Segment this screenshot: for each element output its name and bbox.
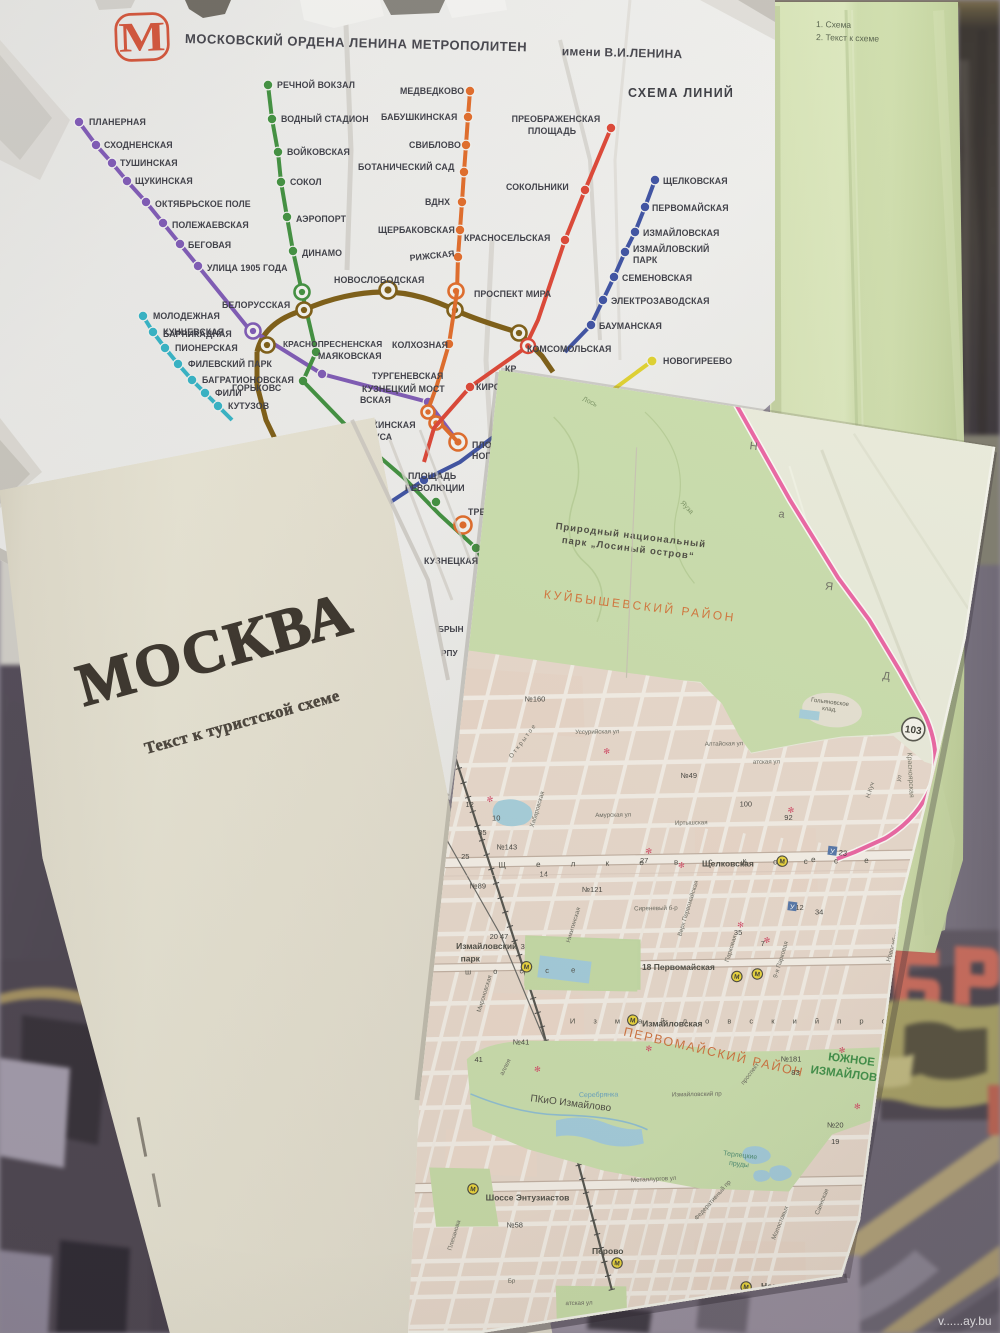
svg-text:ЩЕРБАКОВСКАЯ: ЩЕРБАКОВСКАЯ bbox=[378, 225, 455, 235]
svg-text:УЛИЦА 1905 ГОДА: УЛИЦА 1905 ГОДА bbox=[207, 263, 288, 273]
svg-text:100: 100 bbox=[740, 800, 753, 809]
svg-text:М: М bbox=[734, 973, 740, 981]
svg-text:12: 12 bbox=[465, 800, 473, 809]
svg-text:№58: №58 bbox=[507, 1220, 523, 1229]
svg-text:МОЛОДЕЖНАЯ: МОЛОДЕЖНАЯ bbox=[153, 311, 220, 321]
svg-text:34: 34 bbox=[815, 908, 823, 917]
svg-text:М: М bbox=[470, 1186, 476, 1194]
svg-text:№89: №89 bbox=[470, 881, 486, 890]
svg-text:ВОЙКОВСКАЯ: ВОЙКОВСКАЯ bbox=[287, 146, 350, 157]
svg-text:НОВОСЛОБОДСКАЯ: НОВОСЛОБОДСКАЯ bbox=[334, 275, 424, 285]
svg-text:№160: №160 bbox=[525, 695, 546, 704]
svg-text:ТУШИНСКАЯ: ТУШИНСКАЯ bbox=[120, 158, 178, 168]
svg-text:Измайловский: Измайловский bbox=[456, 941, 517, 951]
svg-text:1. Схема: 1. Схема bbox=[816, 19, 852, 30]
svg-text:ЩУКИНСКАЯ: ЩУКИНСКАЯ bbox=[135, 176, 193, 186]
svg-text:СВИБЛОВО: СВИБЛОВО bbox=[409, 140, 461, 150]
svg-text:М: М bbox=[523, 964, 529, 972]
svg-text:ФИЛЕВСКИЙ ПАРК: ФИЛЕВСКИЙ ПАРК bbox=[188, 358, 273, 369]
svg-text:СХОДНЕНСКАЯ: СХОДНЕНСКАЯ bbox=[104, 140, 173, 150]
svg-text:Н: Н bbox=[749, 440, 758, 453]
svg-text:Измайловский пр: Измайловский пр bbox=[672, 1091, 723, 1099]
svg-text:БРЫН: БРЫН bbox=[438, 625, 464, 634]
svg-text:2. Текст к схеме: 2. Текст к схеме bbox=[816, 32, 880, 44]
svg-text:РЕЧНОЙ ВОКЗАЛ: РЕЧНОЙ ВОКЗАЛ bbox=[277, 79, 355, 90]
svg-text:ПАРК: ПАРК bbox=[633, 255, 658, 265]
svg-text:85: 85 bbox=[478, 828, 486, 837]
svg-text:атская ул: атская ул bbox=[753, 758, 781, 765]
svg-text:Щелковская: Щелковская bbox=[702, 858, 754, 868]
svg-text:парк: парк bbox=[461, 954, 481, 964]
svg-text:М: М bbox=[754, 971, 760, 979]
svg-text:ПРЕОБРАЖЕНСКАЯ: ПРЕОБРАЖЕНСКАЯ bbox=[512, 114, 601, 124]
svg-text:19: 19 bbox=[831, 1137, 839, 1146]
svg-text:Иртышская: Иртышская bbox=[675, 819, 708, 827]
svg-text:М: М bbox=[614, 1260, 620, 1268]
svg-text:КУНЦЕВСКАЯ: КУНЦЕВСКАЯ bbox=[163, 327, 224, 337]
svg-text:СЕМЕНОВСКАЯ: СЕМЕНОВСКАЯ bbox=[622, 273, 692, 283]
svg-text:№143: №143 bbox=[497, 842, 518, 851]
svg-text:БАБУШКИНСКАЯ: БАБУШКИНСКАЯ bbox=[381, 112, 457, 122]
svg-text:ПРОСПЕКТ МИРА: ПРОСПЕКТ МИРА bbox=[474, 289, 552, 299]
svg-text:Бр: Бр bbox=[508, 1278, 516, 1285]
svg-text:МЕДВЕДКОВО: МЕДВЕДКОВО bbox=[400, 86, 464, 96]
svg-text:М: М bbox=[118, 13, 166, 61]
svg-text:РПУ: РПУ bbox=[441, 649, 459, 658]
svg-text:ИЗМАЙЛОВСКАЯ: ИЗМАЙЛОВСКАЯ bbox=[643, 227, 719, 238]
svg-text:СОКОЛЬНИКИ: СОКОЛЬНИКИ bbox=[506, 182, 569, 192]
svg-text:КРАСНОПРЕСНЕНСКАЯ: КРАСНОПРЕСНЕНСКАЯ bbox=[283, 339, 382, 349]
svg-text:Измайловская: Измайловская bbox=[642, 1018, 702, 1028]
svg-text:атская ул: атская ул bbox=[565, 1300, 593, 1307]
svg-text:ПЕРВОМАЙСКАЯ: ПЕРВОМАЙСКАЯ bbox=[652, 202, 729, 213]
svg-text:МАЯКОВСКАЯ: МАЯКОВСКАЯ bbox=[318, 351, 382, 361]
svg-text:10: 10 bbox=[492, 814, 500, 823]
svg-text:БОТАНИЧЕСКИЙ САД: БОТАНИЧЕСКИЙ САД bbox=[358, 161, 455, 172]
svg-text:Уссурийская ул: Уссурийская ул bbox=[575, 728, 620, 736]
svg-text:БАУМАНСКАЯ: БАУМАНСКАЯ bbox=[599, 321, 662, 331]
svg-text:Сиреневый б-р: Сиреневый б-р bbox=[634, 905, 678, 913]
svg-text:ВОДНЫЙ СТАДИОН: ВОДНЫЙ СТАДИОН bbox=[281, 113, 369, 124]
svg-text:СОКОЛ: СОКОЛ bbox=[290, 177, 322, 187]
svg-text:18 Первомайская: 18 Первомайская bbox=[642, 962, 715, 972]
svg-text:М: М bbox=[779, 858, 785, 866]
svg-text:ИЗМАЙЛОВСКИЙ: ИЗМАЙЛОВСКИЙ bbox=[633, 243, 709, 254]
svg-text:83: 83 bbox=[791, 1068, 799, 1077]
svg-text:СХЕМА ЛИНИЙ: СХЕМА ЛИНИЙ bbox=[628, 85, 734, 100]
svg-text:ПЛАНЕРНАЯ: ПЛАНЕРНАЯ bbox=[89, 117, 146, 127]
svg-text:имени В.И.ЛЕНИНА: имени В.И.ЛЕНИНА bbox=[562, 44, 683, 61]
svg-text:№41: №41 bbox=[513, 1038, 529, 1047]
svg-text:№181: №181 bbox=[781, 1055, 802, 1064]
svg-text:№49: №49 bbox=[681, 771, 697, 780]
svg-text:ДИНАМО: ДИНАМО bbox=[302, 248, 342, 258]
svg-text:Шоссе Энтузиастов: Шоссе Энтузиастов bbox=[486, 1193, 570, 1203]
svg-text:✻: ✻ bbox=[787, 805, 795, 815]
svg-text:ПИОНЕРСКАЯ: ПИОНЕРСКАЯ bbox=[175, 343, 238, 353]
svg-text:№20: №20 bbox=[827, 1121, 843, 1130]
svg-text:✻: ✻ bbox=[737, 920, 745, 930]
svg-text:М: М bbox=[630, 1017, 636, 1025]
svg-text:КОМСОМОЛЬСКАЯ: КОМСОМОЛЬСКАЯ bbox=[527, 344, 611, 354]
svg-text:БЕГОВАЯ: БЕГОВАЯ bbox=[188, 240, 231, 250]
svg-text:ЭЛЕКТРОЗАВОДСКАЯ: ЭЛЕКТРОЗАВОДСКАЯ bbox=[611, 296, 710, 306]
svg-text:БЕЛОРУССКАЯ: БЕЛОРУССКАЯ bbox=[222, 300, 290, 310]
svg-text:АЭРОПОРТ: АЭРОПОРТ bbox=[296, 214, 347, 224]
svg-text:25: 25 bbox=[461, 852, 469, 861]
svg-text:23: 23 bbox=[838, 848, 847, 858]
svg-text:КОЛХОЗНАЯ: КОЛХОЗНАЯ bbox=[392, 340, 448, 350]
svg-text:ПОЛЕЖАЕВСКАЯ: ПОЛЕЖАЕВСКАЯ bbox=[172, 220, 249, 230]
svg-text:27: 27 bbox=[640, 856, 648, 865]
svg-text:3: 3 bbox=[521, 942, 525, 951]
svg-text:ОКТЯБРЬСКОЕ ПОЛЕ: ОКТЯБРЬСКОЕ ПОЛЕ bbox=[155, 199, 251, 209]
svg-text:ЩЕЛКОВСКАЯ: ЩЕЛКОВСКАЯ bbox=[663, 176, 728, 186]
svg-text:ВДНХ: ВДНХ bbox=[425, 197, 450, 207]
svg-text:НОВОГИРЕЕВО: НОВОГИРЕЕВО bbox=[663, 356, 732, 366]
svg-text:КРАСНОСЕЛЬСКАЯ: КРАСНОСЕЛЬСКАЯ bbox=[464, 233, 550, 243]
svg-text:41: 41 bbox=[474, 1055, 482, 1064]
svg-text:Алтайская ул: Алтайская ул bbox=[705, 740, 744, 748]
svg-text:20 47: 20 47 bbox=[490, 932, 509, 941]
svg-text:ПЛОЩАДЬ: ПЛОЩАДЬ bbox=[528, 126, 577, 136]
svg-text:№121: №121 bbox=[582, 885, 603, 894]
svg-text:103: 103 bbox=[904, 724, 922, 737]
svg-text:Серебрянка: Серебрянка bbox=[579, 1090, 618, 1099]
svg-text:Перово: Перово bbox=[592, 1246, 624, 1256]
svg-text:Я: Я bbox=[824, 580, 833, 593]
svg-text:Амурская ул: Амурская ул bbox=[595, 811, 631, 819]
